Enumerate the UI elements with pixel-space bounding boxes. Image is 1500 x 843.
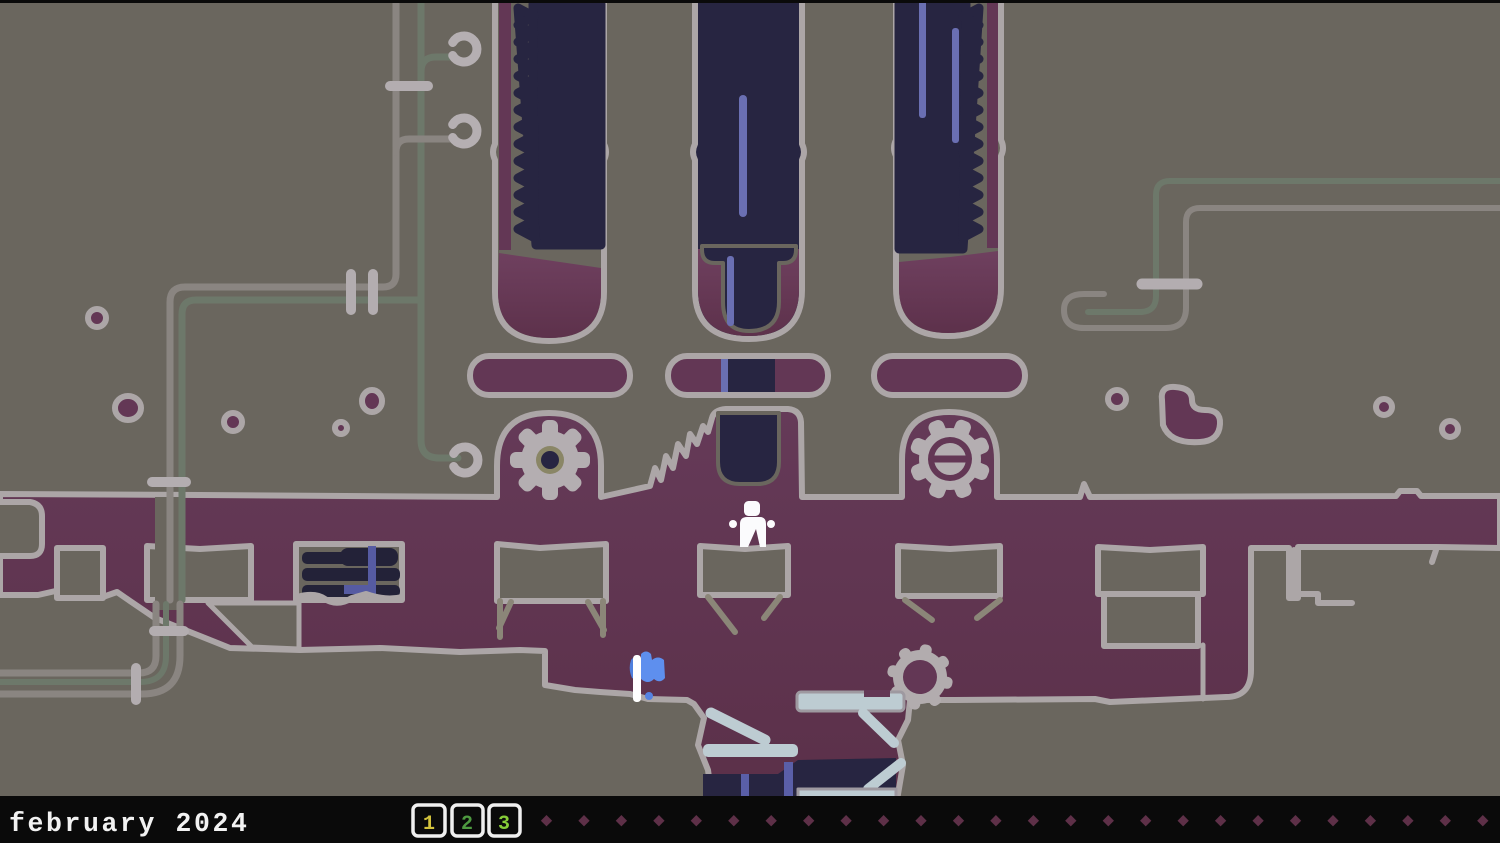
svg-text:2: 2 [461, 813, 473, 836]
svg-text:3: 3 [498, 813, 510, 836]
svg-text:february 2024: february 2024 [9, 809, 250, 839]
svg-text:1: 1 [423, 813, 435, 836]
